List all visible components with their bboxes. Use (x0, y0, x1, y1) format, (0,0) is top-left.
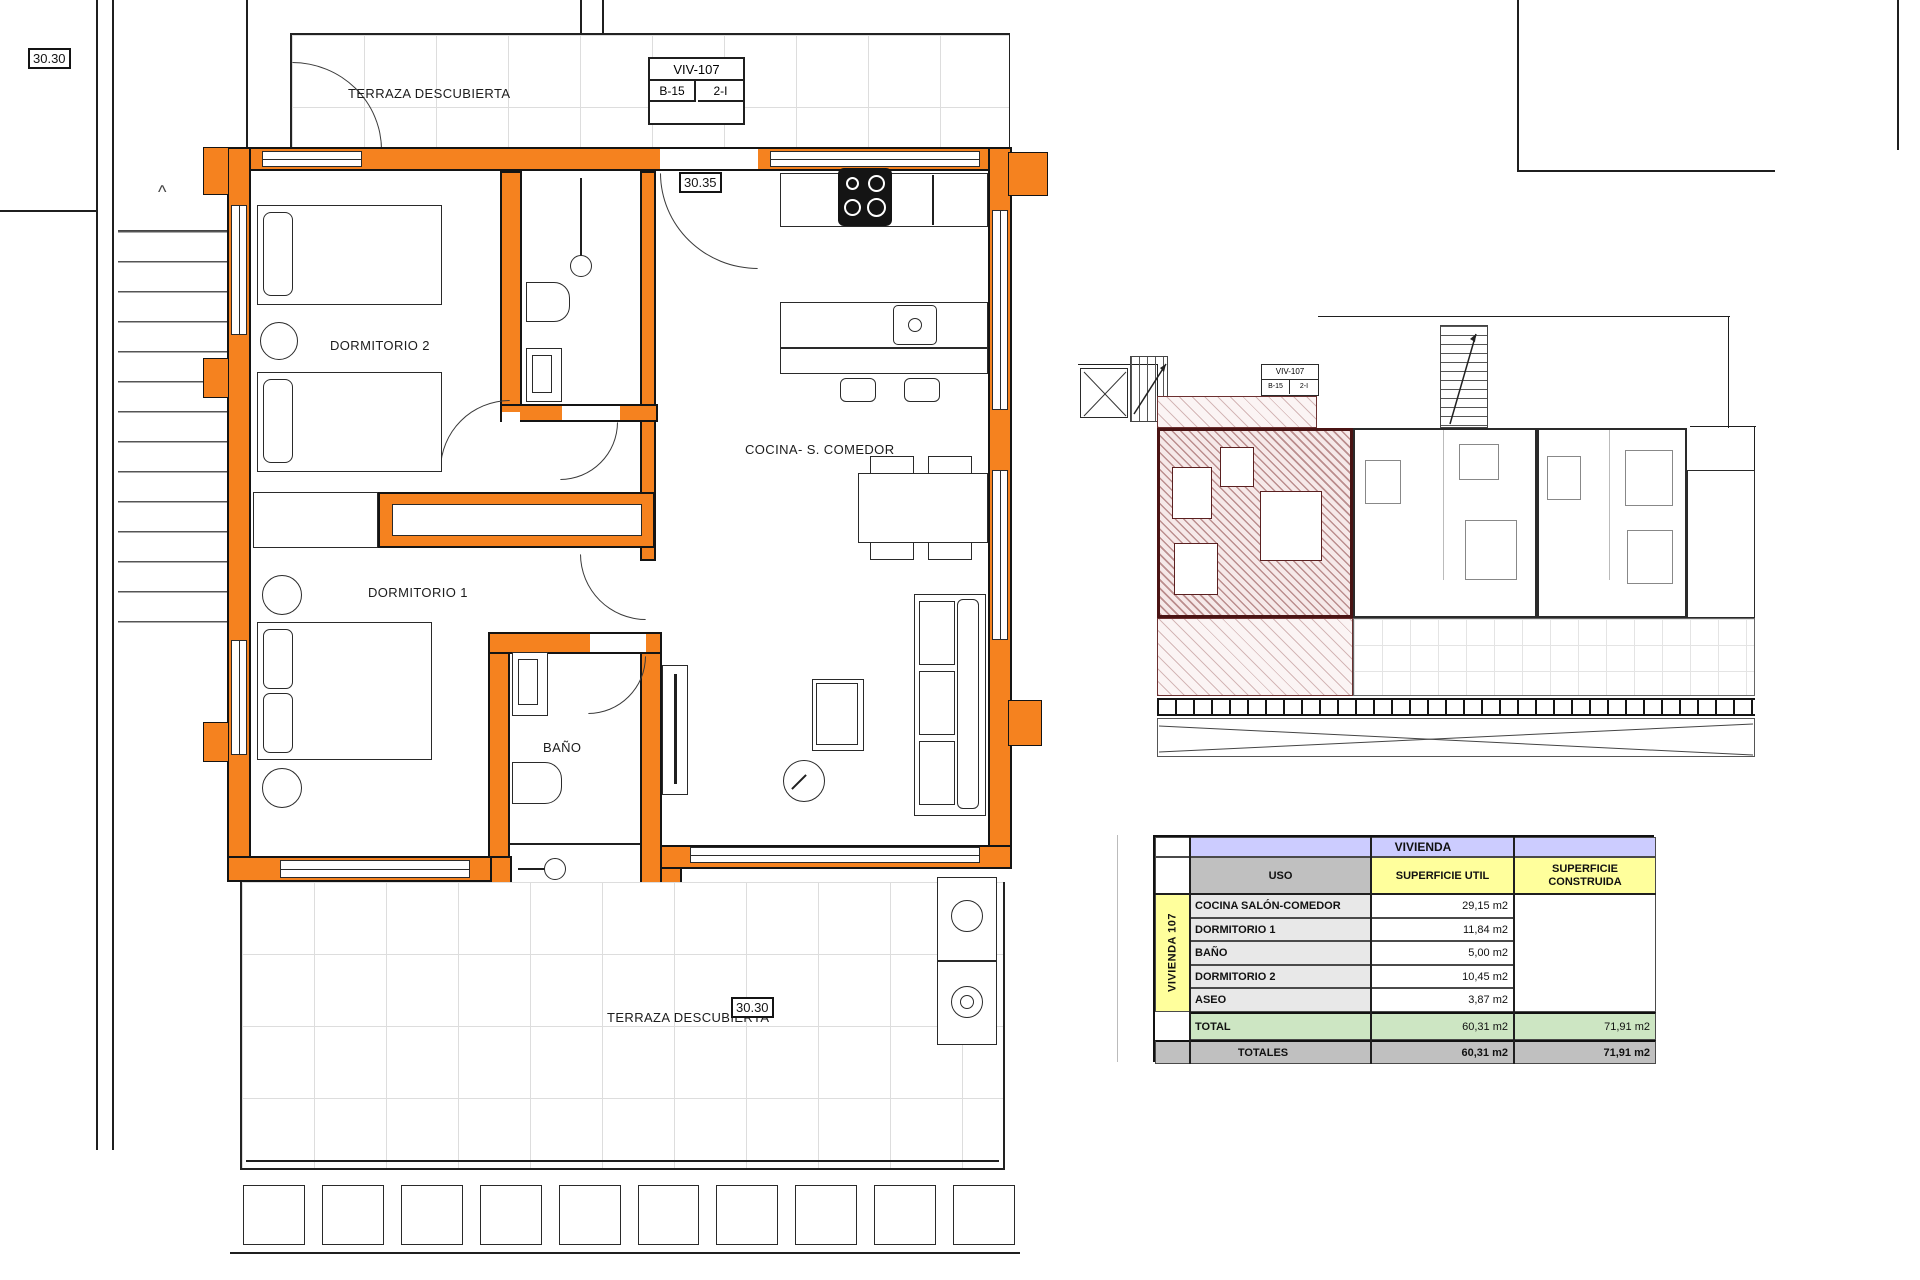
total-label: TOTAL (1190, 1012, 1371, 1040)
wall-bath-right (640, 632, 662, 912)
table-separator (1513, 837, 1515, 1064)
wall-pillar (203, 147, 229, 195)
kitchen-label: COCINA- S. COMEDOR (745, 442, 894, 457)
aseo-door-gap (562, 406, 620, 420)
title-block-building: B-15 (650, 81, 696, 102)
bedside-lamp (262, 768, 302, 808)
pergola-slat (638, 1185, 700, 1245)
stairs-direction-mark: ^ (158, 182, 167, 203)
pergola-slat (322, 1185, 384, 1245)
table-row-label: DORMITORIO 2 (1190, 965, 1371, 988)
pergola-slat (874, 1185, 936, 1245)
pillow (263, 629, 293, 689)
total-util: 60,31 m2 (1371, 1012, 1514, 1040)
title-block: VIV-107 B-15 2-I (648, 57, 745, 125)
table-separator (1189, 837, 1191, 1064)
total-construida: 71,91 m2 (1514, 1012, 1656, 1040)
pergola-slat (795, 1185, 857, 1245)
stool (904, 378, 940, 402)
entrance-door-gap (660, 149, 758, 169)
dining-table (858, 473, 988, 543)
sofa-cushion (919, 741, 955, 805)
sofa-back (957, 599, 979, 809)
sheet-corner-line (1517, 0, 1519, 172)
closet-dorm2 (253, 492, 378, 548)
table-row-value: 5,00 m2 (1371, 941, 1514, 965)
bath-sink (512, 652, 548, 716)
island-sink (893, 305, 937, 345)
floor-plan-sheet: 30.30 ^ TERRAZA DESCUBIERTA VIV-107 B-15… (0, 0, 1920, 1280)
pergola-slat (953, 1185, 1015, 1245)
table-row-label: ASEO (1190, 988, 1371, 1012)
table-row-label: BAÑO (1190, 941, 1371, 965)
wall-pillar (1008, 700, 1042, 746)
table-separator (1370, 837, 1372, 1064)
pillow (263, 379, 293, 463)
window (992, 470, 1008, 640)
totales-util: 60,31 m2 (1371, 1040, 1514, 1064)
chair (870, 456, 914, 474)
sheet-boundary-line (96, 0, 98, 1150)
table-row-value: 29,15 m2 (1371, 894, 1514, 918)
bath-label: BAÑO (543, 740, 581, 755)
shower-head (570, 255, 592, 277)
pergola-slat (559, 1185, 621, 1245)
table-row-label: DORMITORIO 1 (1190, 918, 1371, 941)
table-separator (1155, 893, 1656, 895)
pergola-slat (716, 1185, 778, 1245)
surface-table: VIVIENDA USO SUPERFICIE UTIL SUPERFICIE … (1153, 835, 1654, 1062)
sofa-cushion (919, 601, 955, 665)
table-construida-merged (1514, 894, 1656, 1012)
window (262, 151, 362, 167)
stove (838, 168, 892, 226)
window (280, 860, 470, 878)
table-title: VIVIENDA (1190, 837, 1656, 857)
table-row-value: 10,45 m2 (1371, 965, 1514, 988)
wardrobe-mirror (674, 674, 677, 784)
bath-door-arc (588, 656, 646, 714)
sliding-glass-door (690, 847, 980, 863)
pillow (263, 212, 293, 296)
bedside-lamp (260, 322, 298, 360)
sheet-corner-line (1517, 170, 1775, 172)
shower-arm (580, 178, 582, 258)
sink-drain (908, 318, 922, 332)
chair (928, 456, 972, 474)
col-header-util: SUPERFICIE UTIL (1371, 857, 1514, 894)
dorm2-label: DORMITORIO 2 (330, 338, 430, 353)
wall-pillar (1008, 152, 1048, 196)
dorm1-door-arc (580, 554, 646, 620)
table-corner-cell (1155, 837, 1190, 857)
pillow (263, 693, 293, 753)
title-block-unit: 2-I (698, 81, 743, 102)
shower-divider (510, 843, 640, 845)
totales-label: TOTALES (1155, 1040, 1371, 1064)
bath-door-gap (590, 634, 646, 652)
table-row-value: 3,87 m2 (1371, 988, 1514, 1012)
bed-double (257, 622, 432, 760)
bed-single (257, 372, 442, 472)
overview-annotations (1078, 312, 1768, 762)
stool (840, 378, 876, 402)
elevation-marker-bottom: 30.30 (731, 997, 774, 1018)
hall-wardrobe (662, 665, 688, 795)
laundry-sink (937, 877, 997, 961)
elevation-marker-top-left: 30.30 (28, 48, 71, 69)
island-bar (780, 348, 988, 374)
toilet (526, 282, 570, 322)
wall-dorm2-right (500, 171, 522, 421)
washer-drum-inner (960, 995, 974, 1009)
dorm1-label: DORMITORIO 1 (368, 585, 468, 600)
ground-line (230, 1252, 1020, 1254)
shower-head (544, 858, 566, 880)
pergola-slat (401, 1185, 463, 1245)
chair (928, 542, 972, 560)
sheet-boundary-line (112, 0, 114, 1150)
floor-lamp (783, 760, 825, 802)
shower-arm (518, 868, 546, 870)
kitchen-island (780, 302, 988, 348)
laundry-basin (951, 900, 983, 932)
table-corner-cell (1155, 857, 1190, 894)
coffee-table-top (816, 683, 858, 745)
aseo-door-arc (560, 422, 618, 480)
terrace-inner-line (246, 1160, 999, 1162)
sheet-boundary-line (0, 210, 96, 212)
window (231, 205, 247, 335)
basin (518, 659, 538, 705)
wall-pillar (203, 358, 229, 398)
terrace-top-label: TERRAZA DESCUBIERTA (348, 86, 510, 101)
elevation-marker-interior: 30.35 (679, 172, 722, 193)
pergola-row (243, 1185, 1015, 1245)
basin (532, 355, 552, 393)
col-header-uso: USO (1190, 857, 1371, 894)
table-row-label: COCINA SALÓN-COMEDOR (1190, 894, 1371, 918)
washing-machine (937, 961, 997, 1045)
sheet-gridline (1117, 835, 1118, 1062)
terrace-bottom (240, 882, 1005, 1170)
pergola-slat (480, 1185, 542, 1245)
chair (870, 542, 914, 560)
overview-plan: VIV-107 B-15 2-I (1078, 312, 1768, 762)
stairs (118, 230, 234, 630)
counter-divider (932, 175, 934, 225)
closet-sliding-doors (392, 504, 642, 536)
dorm2-door-arc (440, 400, 510, 470)
sheet-boundary-line (246, 0, 248, 163)
bedside-lamp (262, 575, 302, 615)
table-row-value: 11,84 m2 (1371, 918, 1514, 941)
window (992, 210, 1008, 410)
title-block-code: VIV-107 (650, 59, 743, 81)
table-row-group: VIVIENDA 107 (1155, 894, 1190, 1012)
col-header-construida-line1: SUPERFICIE (1552, 863, 1618, 876)
washbasin (526, 348, 562, 402)
pergola-slat (243, 1185, 305, 1245)
coffee-table (812, 679, 864, 751)
window (231, 640, 247, 755)
window (770, 151, 980, 167)
col-header-construida-line2: CONSTRUIDA (1548, 876, 1621, 889)
wall-pillar (203, 722, 229, 762)
col-header-construida: SUPERFICIE CONSTRUIDA (1514, 857, 1656, 894)
bed-single (257, 205, 442, 305)
sofa (914, 594, 986, 816)
wall-bath-left (488, 632, 510, 858)
totales-construida: 71,91 m2 (1514, 1040, 1656, 1064)
sofa-cushion (919, 671, 955, 735)
sheet-corner-line (1897, 0, 1899, 150)
toilet (512, 762, 562, 804)
